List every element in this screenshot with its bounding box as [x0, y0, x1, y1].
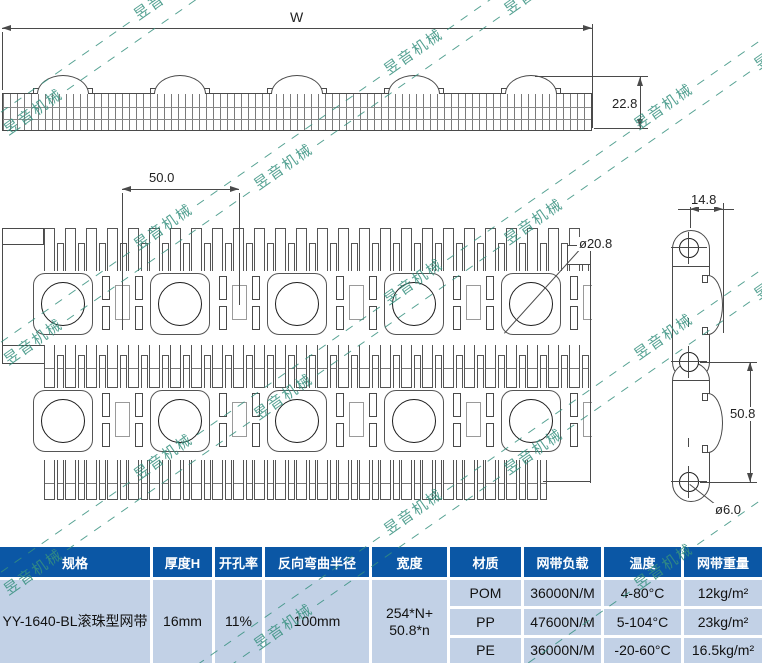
header-temperature: 温度: [604, 547, 681, 577]
dim-link-width: 14.8: [689, 193, 718, 207]
cell-weight-pp: 23kg/m²: [684, 609, 762, 635]
cell-material-pp: PP: [450, 609, 521, 635]
cell-load-pe: 36000N/M: [524, 638, 601, 663]
header-weight: 网带重量: [684, 547, 762, 577]
header-open-area: 开孔率: [215, 547, 262, 577]
plan-view: [2, 228, 592, 500]
header-spec: 规格: [0, 547, 150, 577]
cell-load-pp: 47600N/M: [524, 609, 601, 635]
cell-width: 254*N+ 50.8*n: [372, 580, 447, 663]
cell-weight-pom: 12kg/m²: [684, 580, 762, 606]
header-load: 网带负载: [524, 547, 601, 577]
cell-temp-pp: 5-104°C: [604, 609, 681, 635]
dim-side-pitch: 50.8: [728, 407, 757, 421]
header-thickness: 厚度H: [153, 547, 212, 577]
cell-weight-pe: 16.5kg/m²: [684, 638, 762, 663]
header-bend-radius: 反向弯曲半径: [265, 547, 369, 577]
cell-load-pom: 36000N/M: [524, 580, 601, 606]
pin-hole: [679, 238, 699, 258]
watermark-text: – – – – – – – – – – – – – – 昱音机械 – – – –…: [0, 0, 762, 157]
cell-temp-pom: 4-80°C: [604, 580, 681, 606]
cell-thickness: 16mm: [153, 580, 212, 663]
dim-width-label: W: [288, 10, 305, 25]
pin-hole: [679, 352, 699, 372]
cell-bend-radius: 100mm: [265, 580, 369, 663]
dim-hole-diameter: ø6.0: [713, 503, 743, 517]
cell-width-line1: 254*N+: [386, 605, 433, 622]
dim-height: 22.8: [610, 97, 639, 111]
dim-pitch: 50.0: [147, 171, 176, 185]
drawing-canvas: W 22.8 50.0 ø20.8: [0, 0, 762, 663]
spec-table: 规格 厚度H 开孔率 反向弯曲半径 宽度 材质 网带负载 温度 网带重量 YY-…: [0, 547, 762, 663]
header-material: 材质: [450, 547, 521, 577]
cell-model: YY-1640-BL滚珠型网带: [0, 580, 150, 663]
cell-material-pom: POM: [450, 580, 521, 606]
dim-ball-diameter: ø20.8: [577, 237, 614, 251]
cell-temp-pe: -20-60°C: [604, 638, 681, 663]
cell-open-area: 11%: [215, 580, 262, 663]
header-width: 宽度: [372, 547, 447, 577]
cell-width-line2: 50.8*n: [389, 622, 429, 639]
cell-material-pe: PE: [450, 638, 521, 663]
